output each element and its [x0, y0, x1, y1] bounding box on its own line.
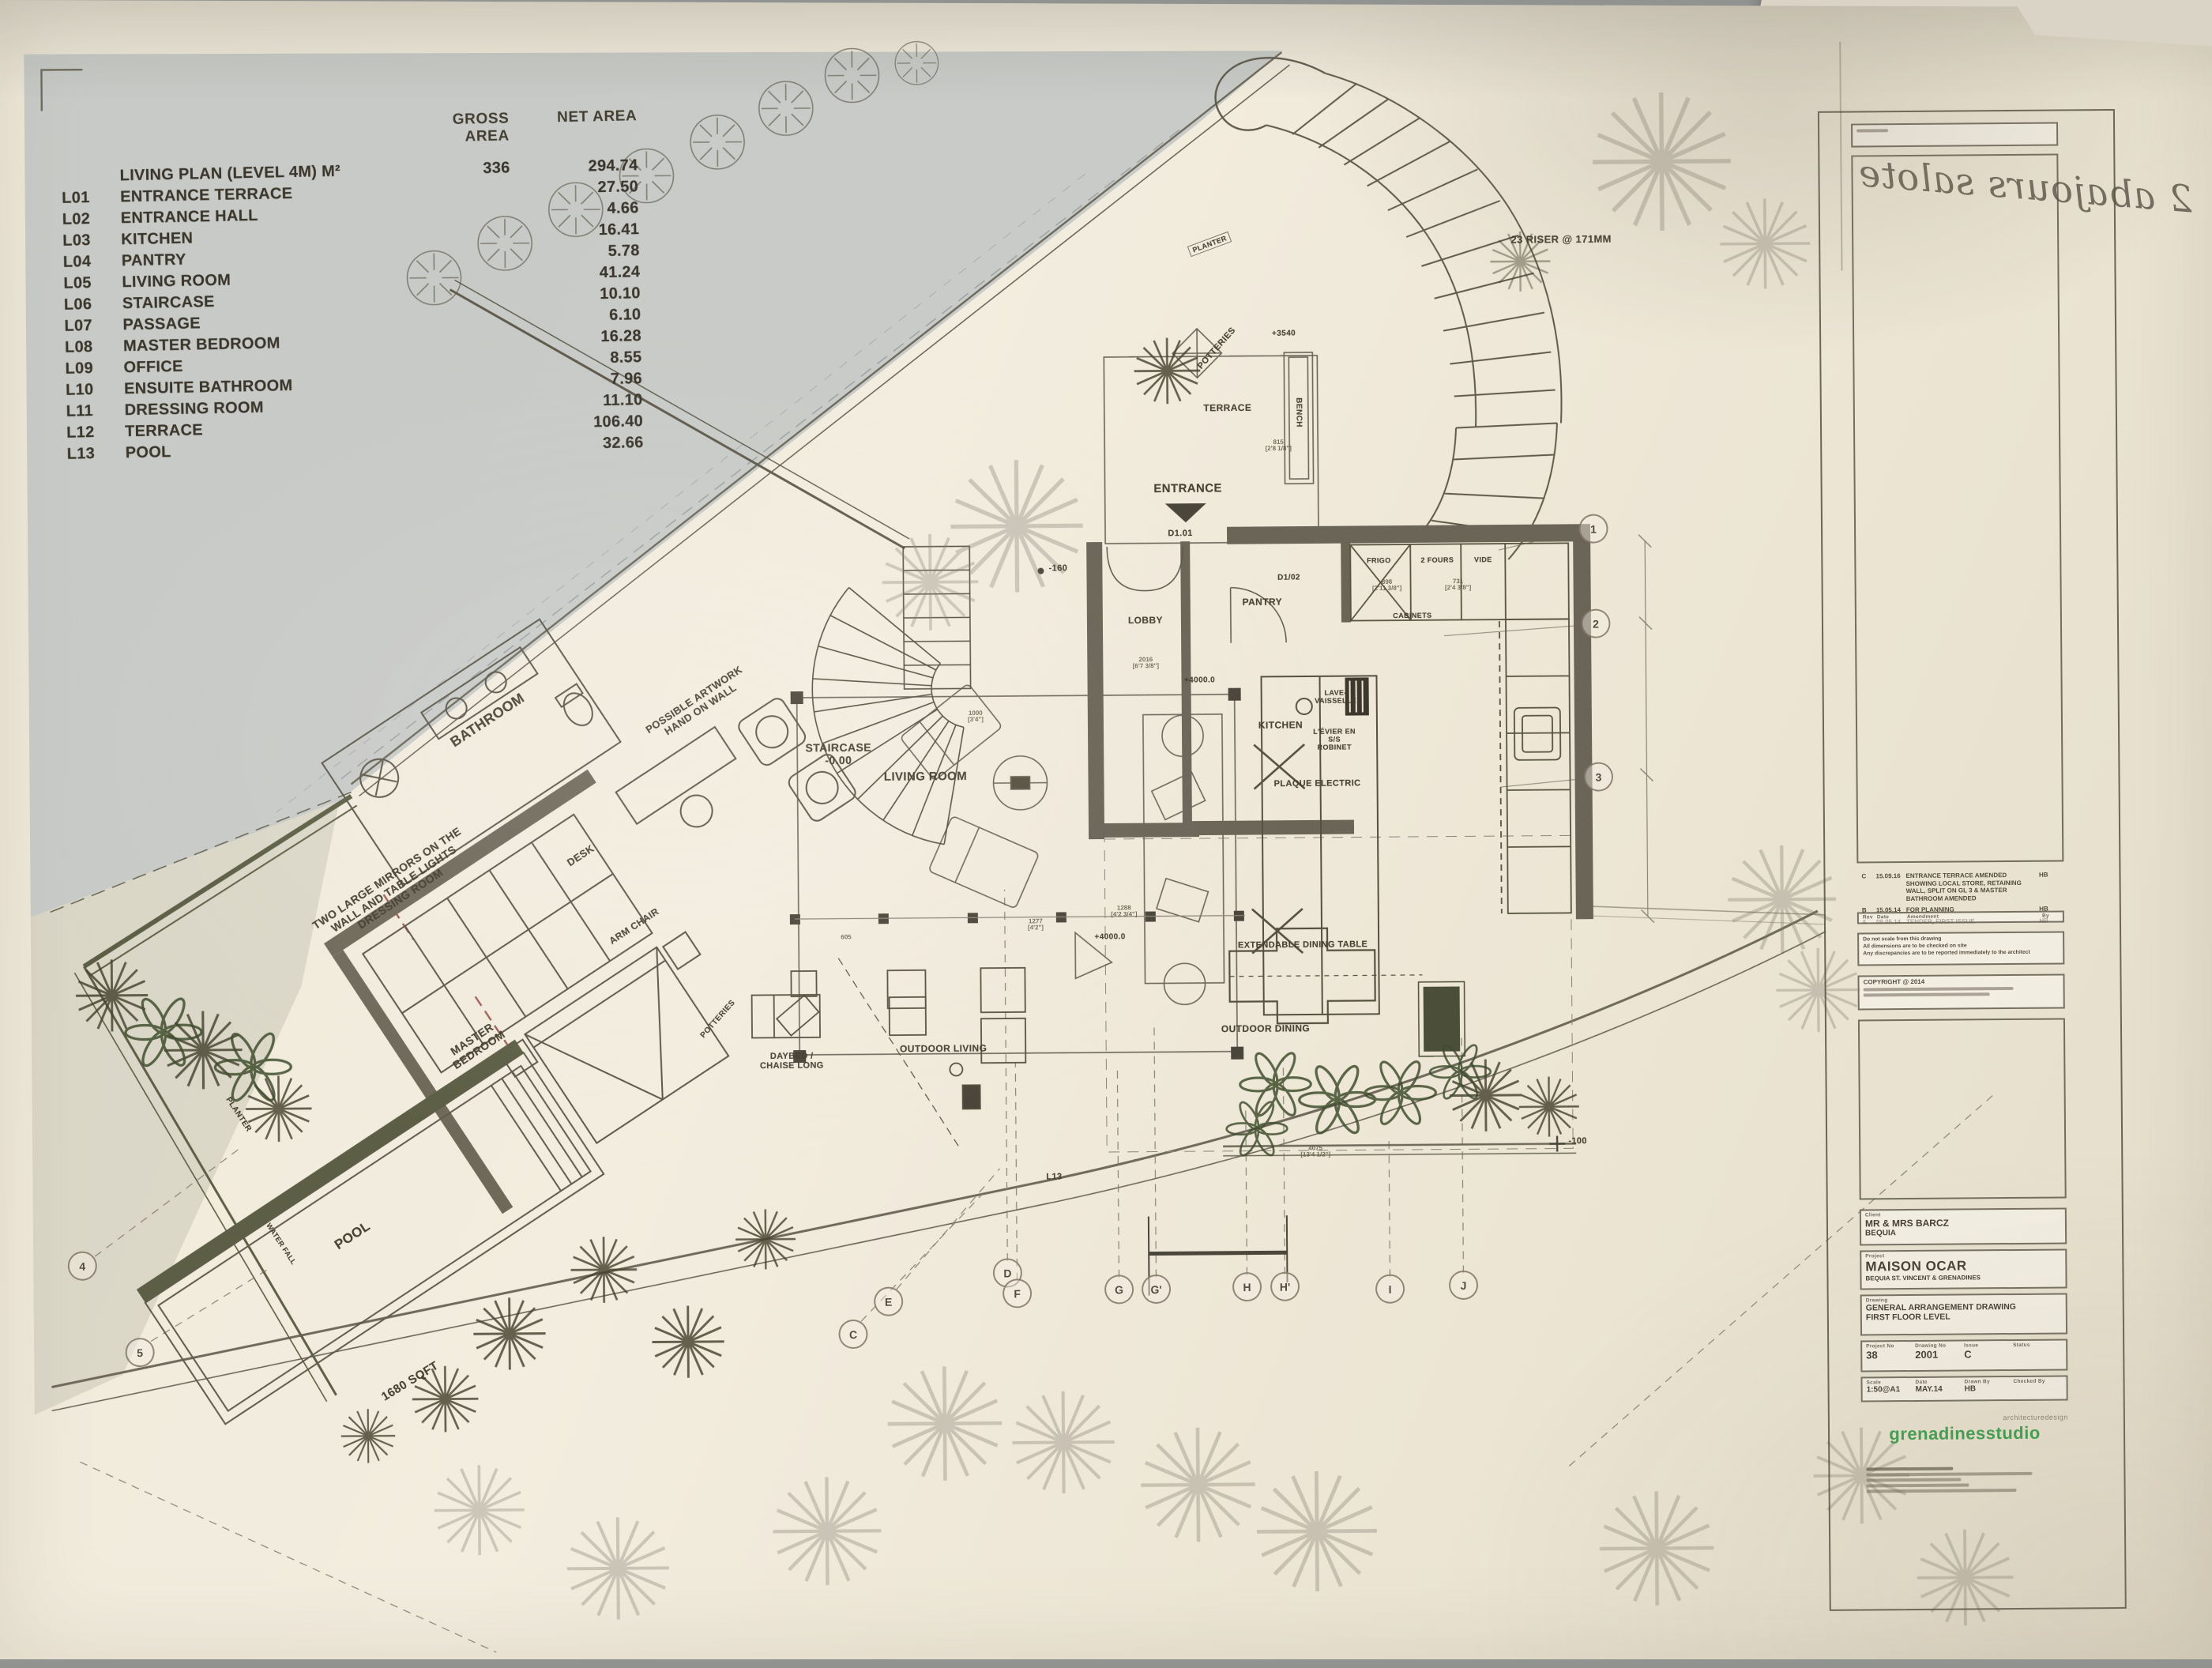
grid-bubble-number: 4: [68, 1252, 97, 1281]
key-box: [1851, 122, 2058, 148]
date-col-header: Date: [1877, 914, 1907, 920]
copyright-box: COPYRIGHT @ 2014: [1857, 973, 2064, 1010]
client-box: Client MR & MRS BARCZ BEQUIA: [1860, 1207, 2067, 1245]
revision-text: ENTRANCE TERRACE AMENDED SHOWING LOCAL S…: [1905, 872, 2030, 902]
numbers-box: Project No 38 Drawing No 2001 Issue C St…: [1860, 1339, 2067, 1372]
empty-box: [1858, 1018, 2067, 1199]
drawing-title-line2: FIRST FLOOR LEVEL: [1866, 1312, 2062, 1323]
scale-value: 1:50@A1: [1867, 1385, 1916, 1394]
revision-by: HB: [2030, 872, 2048, 902]
drawing-no-value: 2001: [1915, 1348, 1964, 1360]
project-location: BEQUIA ST. VINCENT & GRENADINES: [1865, 1274, 2061, 1282]
client-location: BEQUIA: [1865, 1228, 2061, 1238]
status-cell: Status: [2013, 1342, 2062, 1360]
drawn-by-cell: Drawn By HB: [1964, 1379, 2013, 1393]
revision-date: 15.09.16: [1875, 872, 1905, 902]
date-cell: Date MAY.14: [1915, 1379, 1964, 1393]
by-col-header: By: [2032, 913, 2049, 919]
grid-bubble-letter: F: [1003, 1278, 1032, 1308]
grid-bubble-letter: C: [838, 1320, 867, 1349]
grid-bubble-number: 2: [1581, 608, 1610, 638]
issue-cell: Issue C: [1964, 1342, 2013, 1360]
drawn-by-value: HB: [1965, 1384, 2014, 1393]
rev-col-header: Rev: [1863, 914, 1877, 920]
studio-logo: architecturedesign grenadinesstudio: [1861, 1413, 2068, 1444]
photo-of-architectural-drawing: { "sheet": { "handwritten_note": "2 abaj…: [0, 0, 2212, 1659]
status-header: Status: [2013, 1342, 2062, 1348]
grid-bubble-letter: I: [1375, 1275, 1405, 1304]
date-value: MAY.14: [1916, 1384, 1965, 1393]
revision-header-row: Rev Date Amendment By: [1857, 910, 2064, 924]
scale-cell: Scale 1:50@A1: [1866, 1380, 1915, 1394]
checked-by-header: Checked By: [2013, 1379, 2062, 1384]
grid-bubble-letter: H': [1270, 1272, 1300, 1301]
project-name: MAISON OCAR: [1865, 1258, 2061, 1275]
checked-by-cell: Checked By: [2013, 1379, 2062, 1393]
title-block: C15.09.16ENTRANCE TERRACE AMENDED SHOWIN…: [1818, 109, 2127, 1611]
grid-bubble-number: 3: [1584, 762, 1613, 791]
studio-address-lines: [1866, 1464, 2024, 1496]
issue-value: C: [1964, 1348, 2013, 1360]
logo-tagline: architecturedesign: [1861, 1413, 2068, 1422]
drawing-no-cell: Drawing No 2001: [1915, 1342, 1964, 1360]
revision-row: C15.09.16ENTRANCE TERRACE AMENDED SHOWIN…: [1861, 872, 2060, 903]
logo-wordmark: grenadinesstudio: [1861, 1422, 2068, 1444]
revision-letter: C: [1861, 872, 1875, 902]
notes-area-box: [1851, 154, 2063, 864]
note-line: Any discrepancies are to be reported imm…: [1863, 949, 2059, 958]
scale-box: Scale 1:50@A1 Date MAY.14 Drawn By HB Ch…: [1860, 1375, 2067, 1402]
copyright-line: COPYRIGHT @ 2014: [1864, 977, 2060, 986]
project-no-value: 38: [1866, 1349, 1915, 1361]
drawing-sheet: GROSS AREA NET AREA LIVING PLAN (LEVEL 4…: [0, 0, 2212, 1659]
sheet-content: GROSS AREA NET AREA LIVING PLAN (LEVEL 4…: [0, 0, 2212, 1668]
amendment-col-header: Amendment: [1907, 913, 2032, 920]
grid-bubble-number: 1: [1578, 514, 1608, 543]
grid-bubble-letter: E: [874, 1287, 903, 1316]
project-no-cell: Project No 38: [1866, 1343, 1915, 1361]
grid-bubble-letter: G': [1142, 1275, 1171, 1304]
general-notes-box: Do not scale from this drawingAll dimens…: [1857, 931, 2064, 966]
project-box: Project MAISON OCAR BEQUIA ST. VINCENT &…: [1860, 1248, 2067, 1290]
drawing-box: Drawing GENERAL ARRANGEMENT DRAWING FIRS…: [1860, 1293, 2067, 1335]
grid-bubble-letter: H: [1232, 1272, 1262, 1301]
grid-bubble-number: 5: [126, 1338, 155, 1367]
grid-bubble-letter: G: [1104, 1275, 1134, 1304]
grid-bubble-letter: J: [1449, 1271, 1478, 1300]
